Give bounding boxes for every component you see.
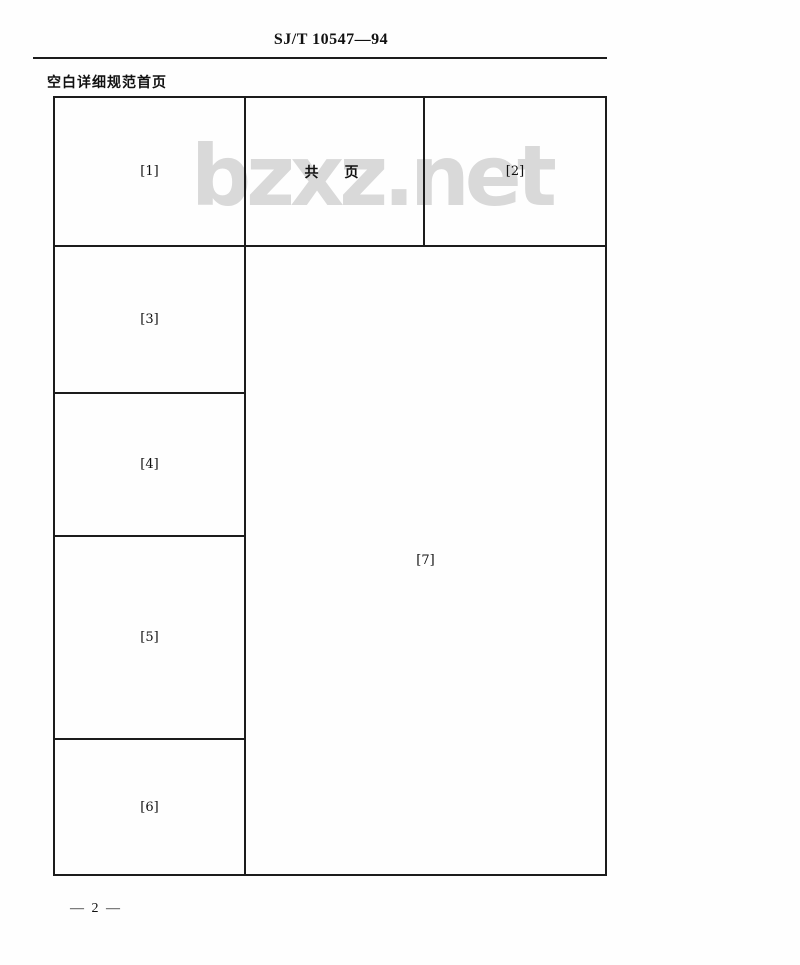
page-title: 空白详细规范首页 (47, 72, 167, 92)
form-cell-6: [6] (55, 740, 244, 874)
form-cell-3: [3] (55, 247, 244, 392)
form-cell-2: [2] (425, 98, 605, 245)
spec-form-table: [1] 共 页 [2] [3] [4] [5] [6] [7] (53, 96, 607, 876)
form-cell-1: [1] (55, 98, 244, 245)
standard-number-header: SJ/T 10547—94 (0, 31, 662, 49)
form-cell-5: [5] (55, 537, 244, 738)
form-cell-7: [7] (246, 247, 605, 874)
document-page: SJ/T 10547—94 空白详细规范首页 bzxz.net [1] 共 页 … (0, 0, 800, 965)
form-cell-4: [4] (55, 394, 244, 535)
header-rule-divider (33, 57, 607, 59)
page-number: — 2 — (70, 901, 122, 917)
form-cell-total-pages: 共 页 (246, 98, 423, 245)
